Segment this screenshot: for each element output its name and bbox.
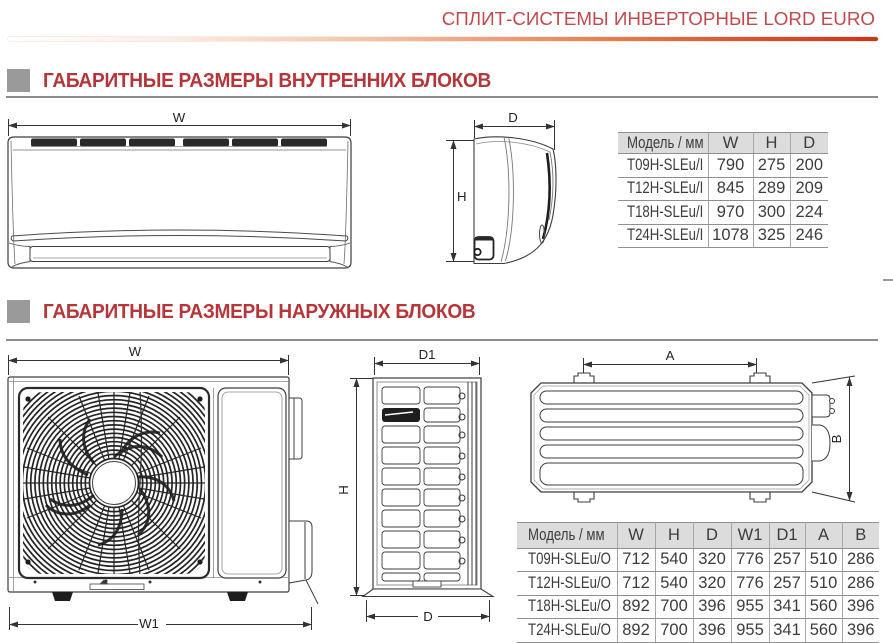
svg-text:B: B: [829, 434, 844, 443]
svg-text:D: D: [423, 609, 433, 624]
svg-text:D1: D1: [419, 347, 436, 362]
svg-text:H: H: [336, 485, 351, 495]
svg-text:A: A: [666, 348, 675, 363]
svg-text:D: D: [508, 110, 518, 125]
svg-text:W1: W1: [139, 616, 159, 631]
svg-text:W: W: [173, 110, 186, 125]
svg-text:H: H: [457, 189, 467, 204]
svg-text:W: W: [129, 344, 142, 359]
